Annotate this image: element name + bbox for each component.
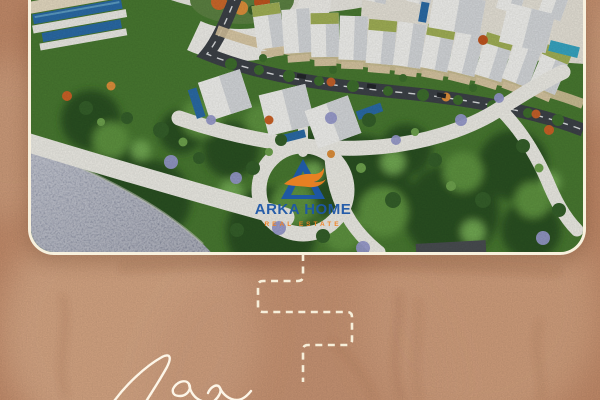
brand-logo-icon xyxy=(279,157,327,201)
brand-name: ARKA HOME xyxy=(253,202,353,217)
brand-watermark: ARKA HOME REAL ESTATE xyxy=(253,157,353,228)
brand-tagline: REAL ESTATE xyxy=(253,221,353,228)
promo-page: ARKA HOME REAL ESTATE xyxy=(0,0,600,400)
